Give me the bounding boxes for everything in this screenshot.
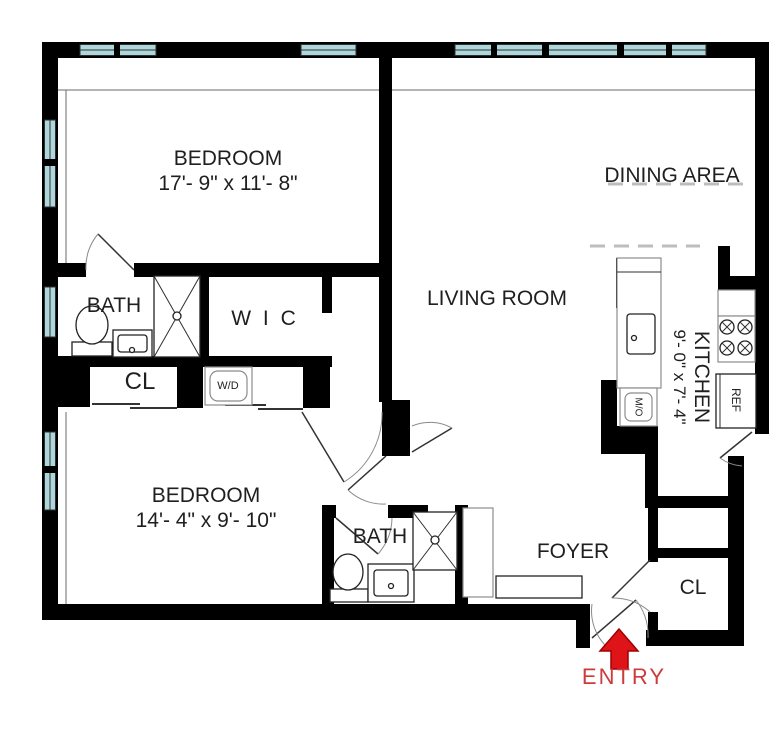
bedroom1-name: BEDROOM [174,147,283,170]
wic-label: W I C [231,306,299,331]
living-room-label: LIVING ROOM [427,286,567,311]
kitchen-name: KITCHEN [690,331,713,423]
refrigerator-label: REF [729,388,743,412]
entry-label: ENTRY [582,664,666,690]
floor-plan: BEDROOM 17'- 9" x 11'- 8" BEDROOM 14'- 4… [0,0,774,754]
bedroom2-double-door [302,412,386,504]
bedroom2-label: BEDROOM 14'- 4" x 9'- 10" [136,483,277,533]
bedroom1-dims: 17'- 9" x 11'- 8" [158,171,297,196]
kitchen-dims: 9'- 0" x 7'- 4" [669,329,689,424]
window-top-dining [455,44,706,56]
bath1-label: BATH [87,293,141,318]
window-left-bedroom1 [44,120,56,207]
sink-bath1 [113,330,152,357]
bedroom2-dims: 14'- 4" x 9'- 10" [136,508,277,533]
foyer-console [496,576,582,598]
window-left-bath1 [45,287,56,337]
kitchen-counter-right [718,290,755,316]
stove-burners [718,316,755,362]
micro-oven-label: M/O [633,398,644,417]
hall-door [412,422,452,452]
shower-bath2 [413,512,457,570]
washer-dryer-label: W/D [217,380,238,392]
window-top-bedroom [80,44,156,56]
foyer-label: FOYER [537,539,609,564]
bedroom1-door [86,234,134,270]
window-left-bedroom2 [44,432,56,510]
floor-plan-drawing [0,0,774,754]
kitchen-label: KITCHEN 9'- 0" x 7'- 4" [669,329,713,424]
closet2-label: CL [680,575,707,600]
entry-arrow-icon [600,629,638,669]
kitchen-sink [627,314,655,354]
bedroom2-name: BEDROOM [152,484,261,507]
closet1-label: CL [125,368,156,397]
shower-bath1 [154,276,200,357]
dining-area-label: DINING AREA [604,163,739,188]
sink-bath2 [368,564,414,602]
foyer-closet [463,508,493,597]
bath2-label: BATH [353,524,407,549]
bedroom1-label: BEDROOM 17'- 9" x 11'- 8" [158,146,297,196]
toilet-bath2 [330,554,368,602]
erased-dimension-marks [590,184,752,246]
window-top-living [301,45,356,56]
